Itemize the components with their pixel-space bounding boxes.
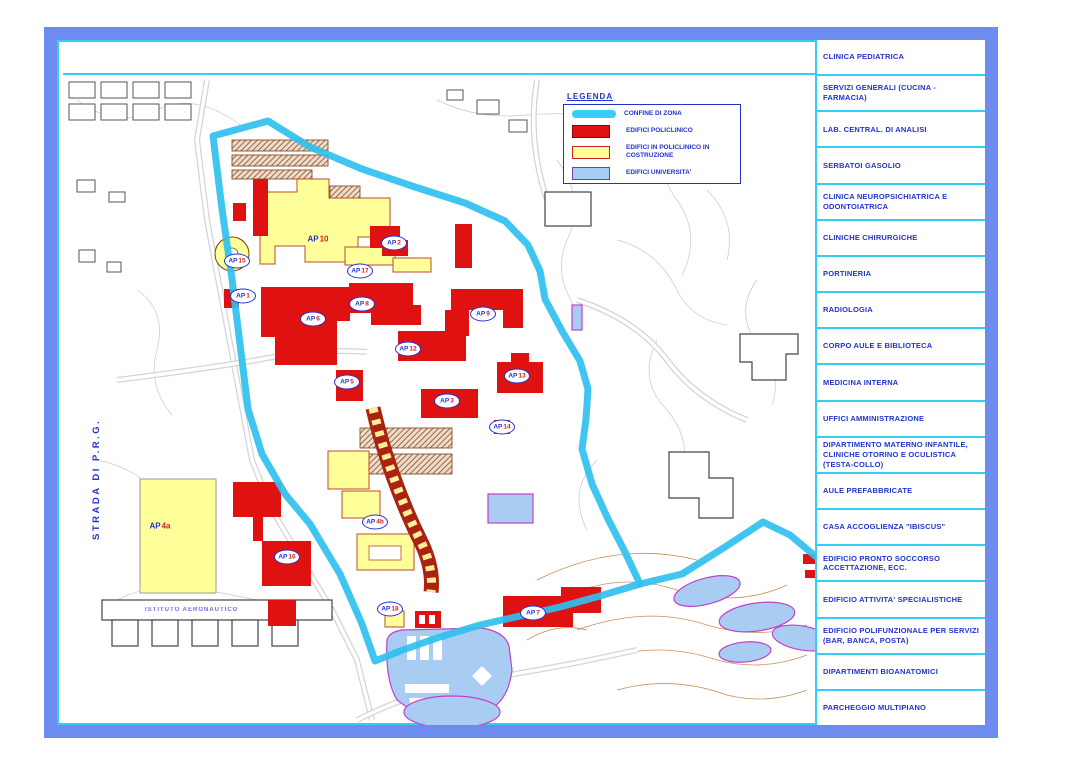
building-index-row: EDIFICIO POLIFUNZIONALE PER SERVIZI (BAR… xyxy=(817,619,985,655)
legend-items: CONFINE DI ZONAEDIFICI POLICLINICOEDIFIC… xyxy=(572,110,736,180)
map-frame: AP10AP4aAP15AP1AP2AP17AP8AP6AP12AP5AP3AP… xyxy=(44,27,998,738)
istituto-label: ISTITUTO AERONAUTICO xyxy=(145,607,238,613)
legend-item: EDIFICI IN POLICLINICO IN COSTRUZIONE xyxy=(572,144,736,160)
legend-item: EDIFICI POLICLINICO xyxy=(572,125,736,138)
building-index-row: EDIFICIO ATTIVITA' SPECIALISTICHE xyxy=(817,582,985,618)
legend-item-label: EDIFICI IN POLICLINICO IN COSTRUZIONE xyxy=(626,144,734,160)
map-area: AP10AP4aAP15AP1AP2AP17AP8AP6AP12AP5AP3AP… xyxy=(57,40,815,725)
building-index-row: LAB. CENTRAL. DI ANALISI xyxy=(817,112,985,148)
legend-item-label: CONFINE DI ZONA xyxy=(624,110,732,118)
blue-swatch xyxy=(572,167,610,180)
building-index-row: SERVIZI GENERALI (CUCINA - FARMACIA) xyxy=(817,76,985,112)
building-index-row: DIPARTIMENTI BIOANATOMICI xyxy=(817,655,985,691)
building-index-row: MEDICINA INTERNA xyxy=(817,365,985,401)
building-index-row: CLINICA NEUROPSICHIATRICA E ODONTOIATRIC… xyxy=(817,185,985,221)
building-index-row: CORPO AULE E BIBLIOTECA xyxy=(817,329,985,365)
building-index-row: AULE PREFABBRICATE xyxy=(817,474,985,510)
boundary-swatch xyxy=(572,110,616,118)
building-index-row: CLINICA PEDIATRICA xyxy=(817,40,985,76)
legend-item: CONFINE DI ZONA xyxy=(572,110,736,118)
building-index: CLINICA PEDIATRICASERVIZI GENERALI (CUCI… xyxy=(815,40,985,725)
building-index-row: PARCHEGGIO MULTIPIANO xyxy=(817,691,985,725)
legend-item-label: EDIFICI UNIVERSITA' xyxy=(626,169,734,177)
road-label: STRADA DI P.R.G. xyxy=(91,335,102,540)
building-index-row: CLINICHE CHIRURGICHE xyxy=(817,221,985,257)
building-index-row: CASA ACCOGLIENZA "IBISCUS" xyxy=(817,510,985,546)
university-buildings xyxy=(387,305,815,725)
building-index-row: DIPARTIMENTO MATERNO INFANTILE, CLINICHE… xyxy=(817,438,985,474)
page: AP10AP4aAP15AP1AP2AP17AP8AP6AP12AP5AP3AP… xyxy=(0,0,1070,765)
building-index-row: EDIFICIO PRONTO SOCCORSO ACCETTAZIONE, E… xyxy=(817,546,985,582)
building-index-row: UFFICI AMMINISTRAZIONE xyxy=(817,402,985,438)
legend-item-label: EDIFICI POLICLINICO xyxy=(626,127,734,135)
building-index-row: RADIOLOGIA xyxy=(817,293,985,329)
building-index-row: SERBATOI GASOLIO xyxy=(817,148,985,184)
legend-title: LEGENDA xyxy=(567,92,613,101)
yellow-swatch xyxy=(572,146,610,159)
red-swatch xyxy=(572,125,610,138)
building-index-row: PORTINERIA xyxy=(817,257,985,293)
legend-item: EDIFICI UNIVERSITA' xyxy=(572,167,736,180)
legend: CONFINE DI ZONAEDIFICI POLICLINICOEDIFIC… xyxy=(563,104,741,184)
